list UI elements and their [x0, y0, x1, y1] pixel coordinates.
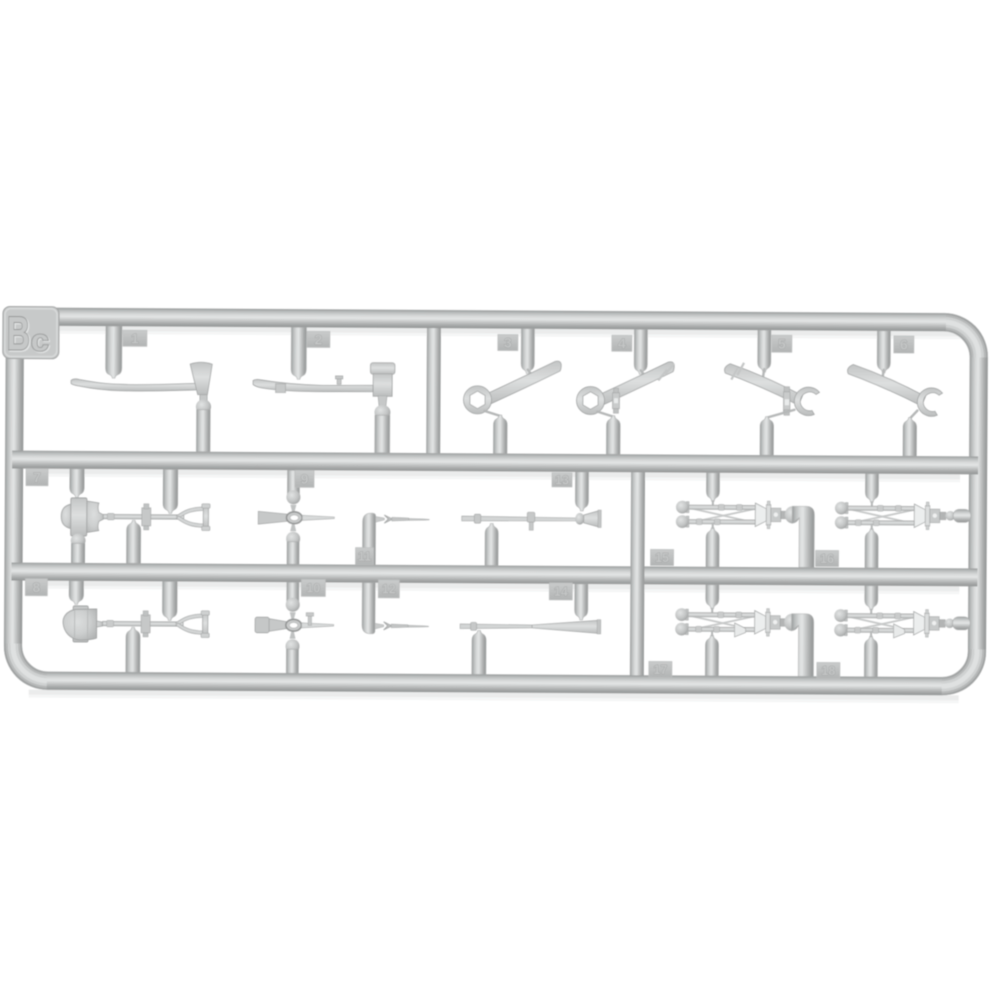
svg-text:6: 6 [900, 336, 908, 352]
svg-text:B: B [7, 306, 30, 359]
svg-text:5: 5 [778, 336, 786, 352]
svg-text:9: 9 [301, 471, 309, 487]
svg-text:14: 14 [554, 585, 568, 599]
svg-text:11: 11 [358, 550, 371, 564]
svg-text:18: 18 [821, 664, 835, 678]
svg-text:17: 17 [653, 663, 667, 677]
svg-text:7: 7 [33, 469, 41, 485]
svg-text:c: c [31, 323, 49, 358]
svg-text:1: 1 [131, 330, 139, 346]
svg-text:4: 4 [618, 335, 626, 351]
svg-text:2: 2 [314, 331, 322, 347]
svg-text:13: 13 [555, 473, 569, 487]
svg-text:8: 8 [32, 579, 40, 595]
svg-text:12: 12 [382, 582, 396, 596]
svg-text:3: 3 [504, 335, 512, 351]
svg-text:16: 16 [820, 552, 834, 566]
svg-text:10: 10 [306, 581, 320, 595]
svg-text:15: 15 [655, 551, 669, 565]
